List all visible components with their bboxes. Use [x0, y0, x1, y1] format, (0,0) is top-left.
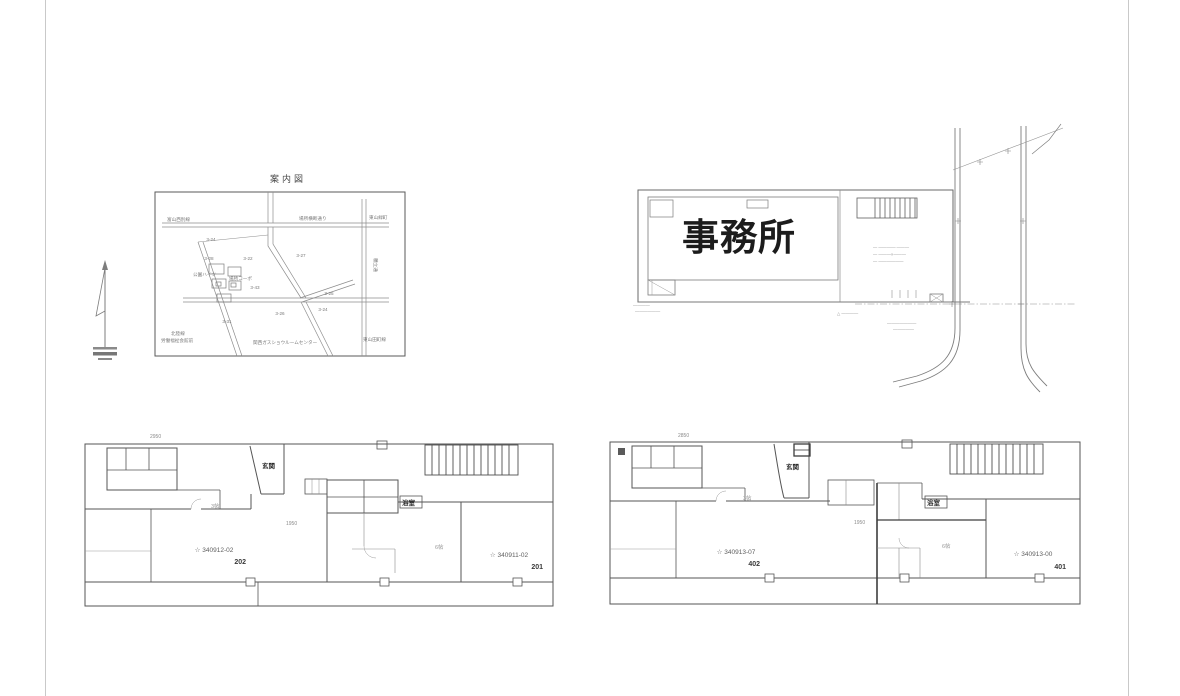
bottom-note: ———————	[887, 321, 917, 326]
bath-label: 浴室	[402, 498, 416, 507]
map-label: 場所コーポ	[229, 275, 252, 282]
office-building-label: 事務所	[682, 213, 822, 263]
map-labels: 富山西別線 場所横断通り 東山緑町 穂立通 3-24 3-28 3-22 3-2…	[161, 214, 388, 346]
site-stair-hatch	[857, 198, 917, 218]
map-label: 東山田町線	[363, 336, 386, 343]
unit-number: 402	[748, 561, 760, 568]
north-arrow-icon	[75, 252, 135, 367]
scanned-drawing-page: 案内図 富山西別線 場所横断通り 東山緑町 穂立通	[0, 0, 1180, 696]
dimension-label: 1950	[854, 520, 865, 526]
map-label: 東山緑町	[369, 214, 388, 221]
plan-walls	[85, 441, 553, 606]
dimension-label: 2950	[150, 434, 161, 440]
leader-note: — ——————	[873, 259, 904, 264]
map-label: 3-24	[206, 237, 216, 242]
room-label: 6帖	[942, 542, 951, 550]
unit-number: 202	[234, 559, 246, 566]
map-title: 案内図	[240, 172, 336, 186]
map-label: 3-22	[243, 256, 253, 261]
mid-note: △ ————	[837, 311, 859, 316]
plan-walls	[610, 440, 1080, 604]
dimension-label: 1950	[286, 521, 297, 527]
floor-plan-402-401: 2850 玄関 浴室 3帖 6帖 1950 ☆ 340913-07 402 ☆ …	[608, 428, 1086, 612]
map-label: 北陸線	[171, 330, 185, 337]
leader-note: — ————·———	[873, 245, 910, 250]
page-edge-left	[45, 0, 46, 696]
site-roads	[893, 124, 1063, 392]
plan-texts: 2850 玄関 浴室 3帖 6帖 1950 ☆ 340913-07 402 ☆ …	[678, 433, 1066, 571]
plan-stair-hatch	[425, 445, 518, 475]
room-label: 3帖	[743, 494, 752, 502]
site-ground-lines	[638, 290, 1075, 304]
entrance-label: 玄関	[262, 461, 276, 470]
left-note: ————	[633, 303, 651, 308]
room-label: 6帖	[435, 543, 444, 551]
map-label: 関西ガスショウルームセンター	[253, 339, 318, 346]
map-label: 労働福祉会館前	[161, 337, 194, 344]
bottom-note: —————	[893, 327, 915, 332]
guide-map: 富山西別線 場所横断通り 東山緑町 穂立通 3-24 3-28 3-22 3-2…	[153, 188, 423, 358]
arrow-base-bar3	[98, 358, 112, 360]
unit-code: ☆ 340911-02	[490, 552, 529, 559]
map-label: 3-24	[318, 307, 328, 312]
map-label: 場所横断通り	[299, 215, 327, 222]
map-label: 3-26	[275, 311, 285, 316]
arrow-base-bar	[93, 347, 117, 350]
map-label: 公園ハイツ	[193, 272, 216, 278]
unit-code: ☆ 340912-02	[195, 547, 234, 554]
plan-stair-hatch	[950, 444, 1043, 474]
unit-code: ☆ 340913-00	[1014, 551, 1053, 558]
arrow-base-bar2	[93, 352, 117, 356]
map-label: 穂立通	[372, 258, 379, 272]
unit-number: 401	[1054, 564, 1066, 571]
bath-label: 浴室	[927, 498, 941, 507]
room-label: 3帖	[211, 502, 220, 510]
entrance-label: 玄関	[786, 462, 800, 471]
map-label: 3-25	[324, 291, 334, 296]
floor-plan-202-201: 2950 玄関 浴室 3帖 6帖 1950 ☆ 340912-02 202 ☆ …	[83, 428, 559, 612]
dimension-label: 2850	[678, 433, 689, 439]
map-label: 3-31	[222, 319, 232, 324]
site-survey-marks	[949, 148, 1026, 307]
map-label: 3-27	[296, 253, 306, 258]
left-note: ——————	[635, 309, 661, 314]
page-edge-right	[1128, 0, 1129, 696]
map-label: 3-28	[204, 256, 214, 261]
leader-note: — ———×———	[873, 252, 907, 257]
map-buildings	[209, 264, 241, 302]
map-label: 3-43	[250, 285, 260, 290]
unit-code: ☆ 340913-07	[717, 549, 756, 556]
unit-number: 201	[531, 564, 543, 571]
map-label: 富山西別線	[167, 216, 190, 223]
